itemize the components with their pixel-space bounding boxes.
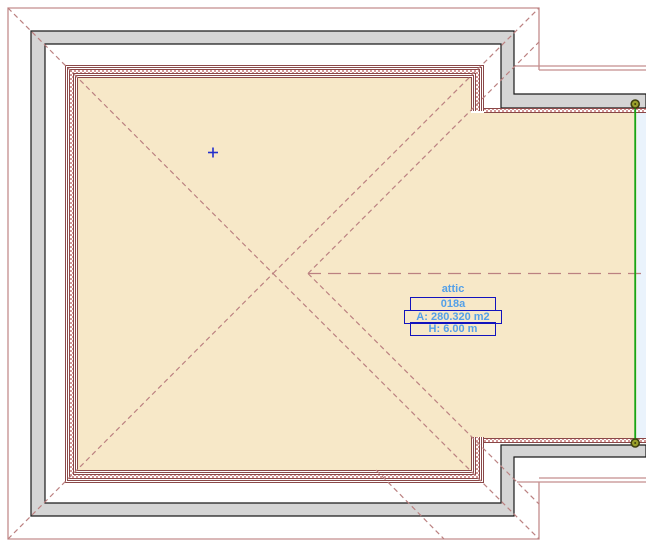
zone-stamp[interactable]: attic 018a A: 280.320 m2 H: 6.00 m bbox=[404, 283, 502, 336]
floor-plan-drawing bbox=[0, 0, 646, 550]
zone-height-label: H: 6.00 m bbox=[410, 322, 496, 336]
zone-name-label: attic bbox=[404, 283, 502, 296]
adjacent-zone-highlight bbox=[637, 113, 646, 438]
zone-area-label: A: 280.320 m2 bbox=[404, 310, 502, 324]
floor-plan-canvas[interactable]: attic 018a A: 280.320 m2 H: 6.00 m bbox=[0, 0, 646, 550]
